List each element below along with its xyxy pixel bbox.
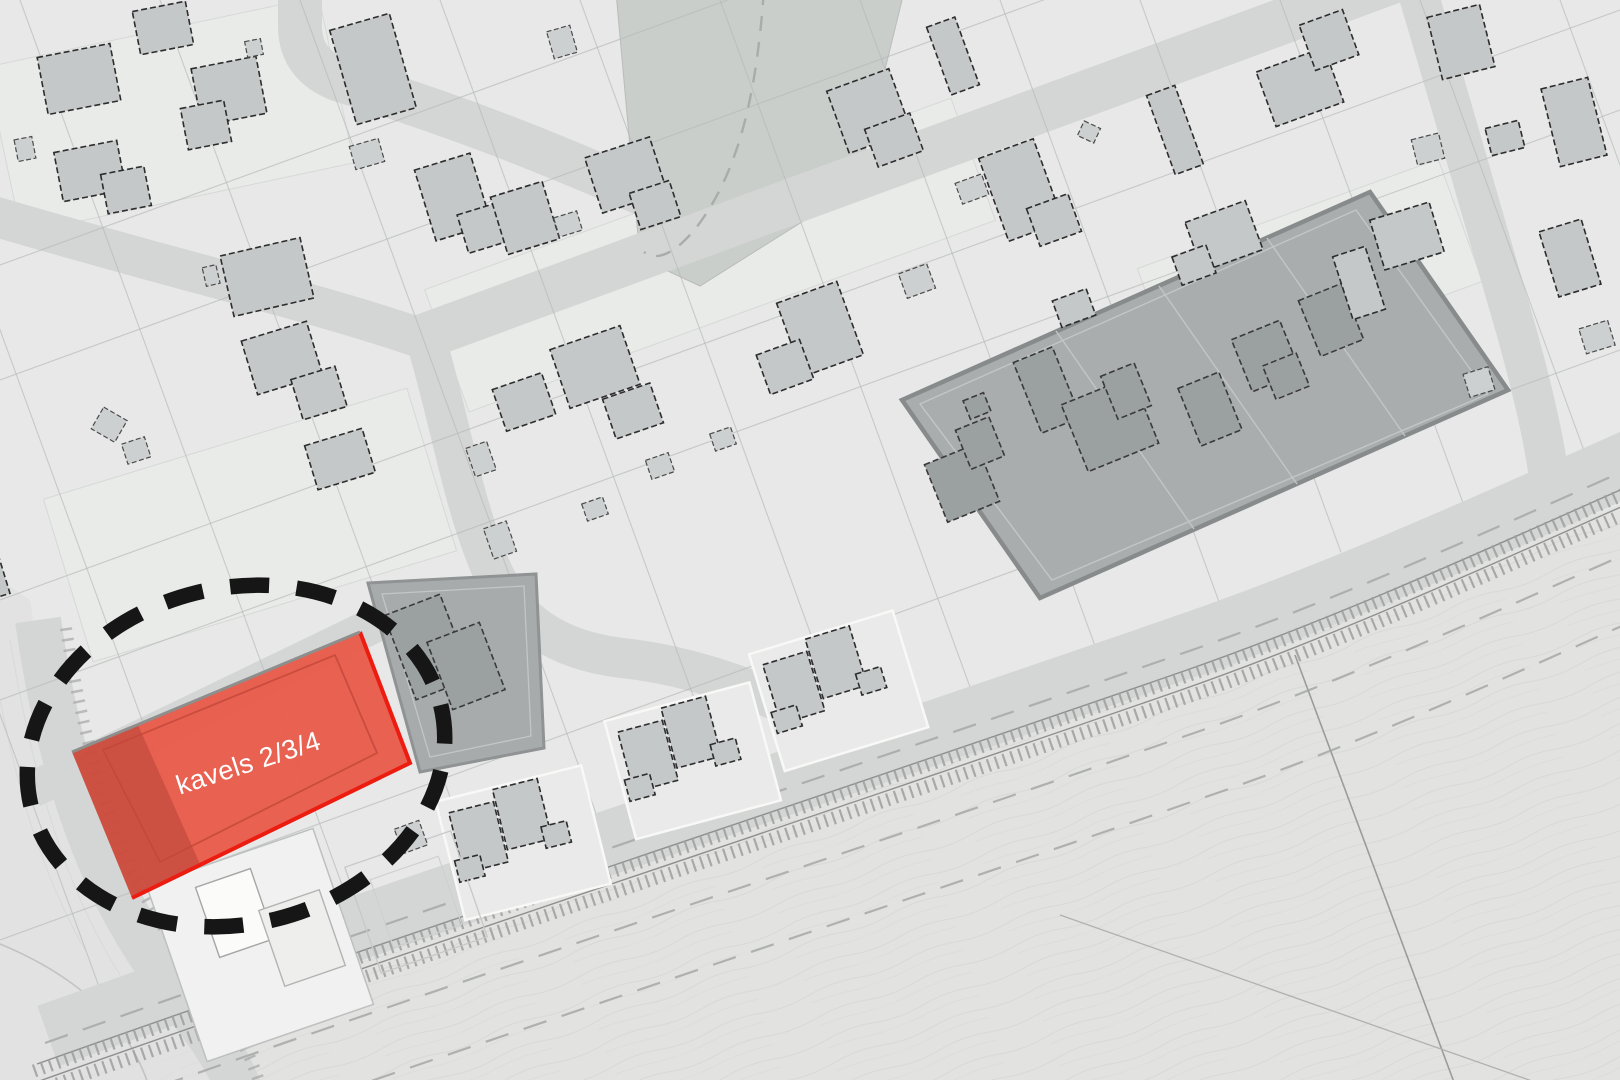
site-plan-screenshot: kavels 2/3/4 [0,0,1620,1080]
site-plan-map: kavels 2/3/4 [0,0,1620,1080]
